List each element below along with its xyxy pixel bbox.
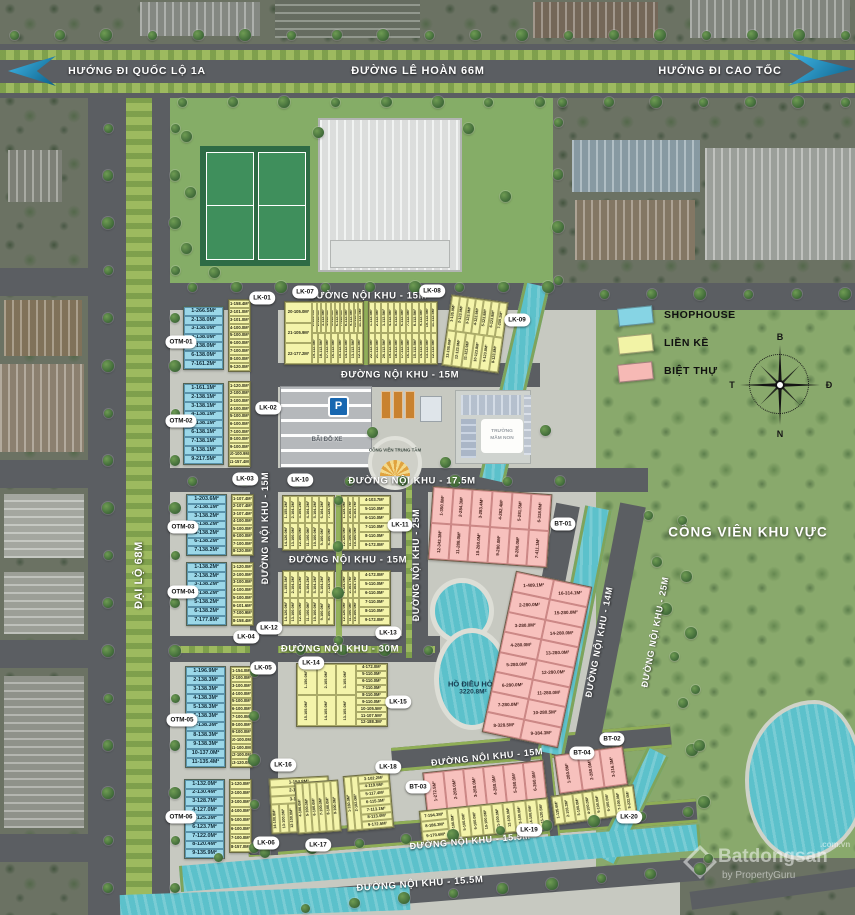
lot: 7-124.0M² [327, 496, 334, 523]
lot: 7-100.0M² [229, 347, 250, 355]
tree-icon [103, 170, 114, 181]
aerial-factory [705, 148, 855, 260]
lot: 1-155.3M² [283, 571, 290, 598]
avenue-median [126, 98, 152, 915]
lot: 5-281.5M² [510, 492, 532, 529]
lot: 3-283.4M² [470, 490, 492, 527]
lot: 6-318.0M² [529, 494, 551, 531]
tree-icon [600, 290, 609, 299]
aerial-left-houses [4, 300, 82, 356]
lot: 4-100.0M² [229, 405, 250, 413]
tree-icon [432, 96, 444, 108]
tree-icon [554, 118, 563, 127]
tree-icon [670, 652, 679, 661]
lot: 8-157.0M² [230, 843, 251, 852]
block-badge-OTM-03: OTM-03 [167, 521, 198, 534]
lot: 3-138.0M² [184, 325, 223, 334]
kindergarten-label-2: MẦM NON [490, 436, 513, 443]
lot: 9-172.5M² [362, 819, 394, 829]
tree-icon [793, 29, 805, 41]
aerial-cross-road [0, 268, 112, 296]
lot: 8-120.0M² [232, 548, 253, 556]
lot: 2-284.3M² [451, 488, 473, 525]
tree-icon [841, 98, 850, 107]
lot: 5-110.0M² [356, 671, 387, 678]
lot-block-LK-12-col: 1-120.0M²2-100.0M²3-100.0M²4-100.0M²5-10… [231, 562, 254, 626]
lot: 12-100.0M² [298, 523, 305, 550]
lot: 4-100.0M² [232, 586, 253, 594]
road-label-le-hoan: ĐƯỜNG LÊ HOÀN 66M [351, 65, 485, 77]
block-badge-LK-01: LK-01 [249, 292, 275, 305]
tree-icon [503, 477, 512, 486]
tree-icon [170, 740, 181, 751]
lot-block-LK-17-blk: 4-100.0M²5-100.0M²6-100.0M²7-100.0M²8-10… [294, 780, 342, 835]
lot: 5-138.3M² [186, 703, 225, 712]
lot: 8-158.4M² [232, 617, 253, 625]
tree-icon [678, 516, 687, 525]
lot: 2-100.0M² [231, 675, 252, 683]
tree-icon [104, 124, 113, 133]
lot: 7-138.2M² [187, 546, 226, 555]
road-label-quoc-lo-1a: HƯỚNG ĐI QUỐC LỘ 1A [68, 65, 206, 77]
tree-icon [564, 31, 573, 40]
aerial-cross-road [0, 834, 112, 862]
lot: 7-100.0M² [232, 540, 253, 548]
lot: 5-100.0M² [230, 816, 251, 825]
lot: 1-120.0M² [232, 563, 253, 571]
lot: 13-105.0M² [336, 695, 356, 726]
kindergarten-label-1: TRƯỜNG [491, 429, 513, 436]
lot: 9-100.0M² [229, 443, 250, 451]
lot: 4-104.2M² [305, 571, 312, 598]
tree-icon [542, 281, 554, 293]
tree-icon [103, 455, 114, 466]
lot: 8-110.0M² [359, 607, 390, 616]
lot: 9-110.0M² [356, 698, 387, 705]
lot: 1-161.1M² [184, 384, 223, 393]
block-badge-OTM-01: OTM-01 [165, 336, 196, 349]
lot: 2-138.1M² [184, 393, 223, 402]
lot: 3-100.0M² [231, 682, 252, 690]
lot: 6-104.2M² [319, 496, 326, 523]
lot: 3-138.2M² [187, 512, 226, 521]
kindergarten-building [461, 419, 476, 458]
tree-icon [10, 31, 19, 40]
tree-icon [792, 96, 804, 108]
road-label: ĐƯỜNG NỘI KHU - 15M [260, 472, 270, 585]
tree-icon [102, 360, 114, 372]
tree-icon [171, 836, 180, 845]
lot: 6-100.0M² [229, 339, 250, 347]
lot: 6-101.6M² [232, 602, 253, 610]
lot: 5-104.2M² [312, 496, 319, 523]
block-badge-LK-20: LK-20 [616, 811, 642, 824]
lot: 9-120.0M² [229, 363, 250, 371]
lot: 9-100.0M² [319, 523, 326, 550]
compass-hub [775, 380, 785, 390]
tree-icon [349, 898, 360, 909]
lot-block-LK-14-blk: 1-150.0M²2-105.0M²3-105.0M²15-105.0M²14-… [296, 663, 388, 727]
lot: 3-104.2M² [298, 496, 305, 523]
compass-south: N [777, 429, 784, 439]
lot: 11-288.0M² [448, 524, 470, 561]
lot: 6-138.2M² [187, 538, 226, 547]
tree-icon [425, 31, 434, 40]
watermark-byline: by PropertyGuru [722, 870, 795, 881]
lot: 1-132.0M² [185, 780, 224, 789]
lot: 5-138.2M² [187, 598, 226, 607]
court-net-line [258, 205, 306, 206]
lot: 9-280.0M² [488, 527, 510, 564]
lot: 2-138.0M² [184, 316, 223, 325]
tree-icon [248, 754, 260, 766]
lot: 6-260.0M² [523, 761, 547, 801]
tree-icon [181, 131, 192, 142]
tree-icon [685, 627, 697, 639]
road-label: ĐẠI LỘ 68M [133, 541, 145, 609]
lot: 10-100.0M² [312, 523, 319, 550]
lot: 9-138.3M² [186, 740, 225, 749]
parking-label: BÃI ĐỖ XE [312, 437, 343, 443]
tree-icon [169, 645, 181, 657]
tennis-court [258, 152, 306, 260]
lot: 12-343.3M² [429, 523, 451, 560]
tree-icon [104, 836, 113, 845]
lot-block-LK-13-blk: 1-124.0M²2-103.7M²3-103.7M²12-120.0M²11-… [341, 570, 391, 626]
lot: 1-120.0M² [229, 382, 250, 390]
tree-icon [498, 282, 509, 293]
tree-icon [275, 281, 287, 293]
lot: 3-138.3M² [186, 685, 225, 694]
lot: 5-110.0M² [359, 505, 390, 514]
lot: 2-101.0M² [229, 308, 250, 316]
lot: 3-101.0M² [229, 316, 250, 324]
road-label: ĐƯỜNG NỘI KHU - 15M [289, 555, 407, 566]
aerial-top-buildings [690, 0, 850, 38]
compass-west: T [729, 380, 735, 390]
tree-icon [381, 97, 392, 108]
tree-icon [170, 170, 181, 181]
lot: 6-110.0M² [356, 678, 387, 685]
tree-icon [104, 266, 113, 275]
lot: 12-188.3M² [356, 719, 387, 726]
lot: 12-112.5M² [357, 333, 363, 364]
lot: 6-104.2M² [319, 571, 326, 598]
lot: 11-100.0M² [231, 744, 252, 752]
lot: 12-112.5M² [431, 333, 437, 364]
aerial-left-warehouse [4, 494, 84, 558]
lot: 11-135.4M² [186, 758, 225, 767]
lot: 1-138.2M² [187, 563, 226, 572]
legend-chip-lien-ke [617, 333, 654, 355]
block-badge-LK-14: LK-14 [298, 657, 324, 670]
lot: 1-266.5M² [184, 307, 223, 316]
road-label: ĐƯỜNG NỘI KHU - 25M [411, 509, 421, 622]
lot: 10-100.0M² [231, 736, 252, 744]
lot: 2-138.3M² [186, 676, 225, 685]
lot: 11-112.5M² [358, 302, 363, 333]
block-badge-LK-17: LK-17 [305, 839, 331, 852]
lot: 4-100.0M² [232, 518, 253, 526]
lot: 6-100.0M² [231, 705, 252, 713]
tree-icon [169, 502, 181, 514]
lot: 6-100.0M² [232, 533, 253, 541]
lot: 2-107.4M² [232, 503, 253, 511]
block-badge-OTM-04: OTM-04 [167, 586, 198, 599]
lot: 1-158.4M² [229, 300, 250, 308]
lot: 7-122.0M² [185, 832, 224, 841]
lot: 13-100.0M² [290, 523, 297, 550]
lot: 11-100.0M² [305, 598, 312, 625]
lot: 4-282.4M² [490, 491, 512, 528]
road-label: ĐƯỜNG NỘI KHU - 30M [281, 644, 399, 655]
block-badge-LK-07: LK-07 [292, 286, 318, 299]
block-badge-BT-01: BT-01 [550, 518, 575, 531]
tree-icon [440, 457, 451, 468]
boulevard-median [0, 50, 855, 60]
lot: 8-110.0M² [356, 692, 387, 699]
kindergarten-sign: TRƯỜNG MẦM NON [481, 419, 523, 453]
block-badge-LK-03: LK-03 [232, 473, 258, 486]
lot: 22-177.2M² [285, 343, 312, 364]
lot: 9-100.0M² [319, 598, 326, 625]
lot: 9-172.0M² [359, 616, 390, 625]
lot: 3-138.1M² [184, 402, 223, 411]
tree-icon [231, 282, 242, 293]
tree-icon [546, 878, 558, 890]
tree-icon [542, 820, 553, 831]
park-label: CÔNG VIÊN KHU VỰC [668, 525, 827, 540]
block-badge-BT-04: BT-04 [569, 747, 594, 760]
tree-icon [171, 551, 180, 560]
block-badge-OTM-06: OTM-06 [165, 811, 196, 824]
lot-block-LK-18-blk: 1-160.0M²2-102.0M²3-102.2M²4-119.5M²5-11… [343, 772, 395, 832]
lot: 3-316.3M² [600, 746, 628, 787]
lot: 7-100.0M² [230, 834, 251, 843]
lot: 11-157.4M² [229, 458, 250, 466]
tree-icon [102, 217, 114, 229]
lot-block-LK-01-col: 1-158.4M²2-101.0M²3-101.0M²4-100.0M²5-10… [228, 299, 251, 372]
road-label: ĐƯỜNG NỘI KHU - 17.5M [348, 476, 475, 487]
lot: 5-100.0M² [232, 594, 253, 602]
lot: 8-120.4M² [185, 841, 224, 850]
compass-east: Đ [826, 380, 833, 390]
lot: 4-138.3M² [186, 694, 225, 703]
lot: 2-104.2M² [290, 496, 297, 523]
tree-icon [747, 30, 758, 41]
road-label-cao-toc: HƯỚNG ĐI CAO TỐC [658, 65, 782, 77]
tree-icon [588, 815, 600, 827]
aerial-left-warehouse [4, 676, 84, 828]
lot: 11-112.5M² [431, 302, 437, 333]
lot-block-LK-11-blk: 1-124.0M²2-103.7M²3-103.7M²12-120.0M²11-… [341, 495, 391, 551]
lot: 5-104.2M² [312, 571, 319, 598]
lot: 13-100.0M² [290, 598, 297, 625]
lot: 11-100.0M² [305, 523, 312, 550]
lot: 2-138.2M² [187, 572, 226, 581]
road-label: ĐƯỜNG NỘI KHU - 15M [341, 370, 459, 381]
tree-icon [102, 502, 114, 514]
shophouse-buildings [381, 391, 391, 419]
lot: 10-280.0M² [468, 526, 490, 563]
lot: 9-172.0M² [359, 541, 390, 550]
lot: 3-107.4M² [232, 510, 253, 518]
aerial-factory [572, 140, 700, 192]
lot: 9-217.5M² [184, 455, 223, 464]
lot: 6-138.0M² [184, 351, 223, 360]
lot: 15-105.0M² [297, 695, 317, 726]
tree-icon [193, 30, 204, 41]
lot: 8-138.1M² [184, 446, 223, 455]
lot: 10-100.9M² [229, 451, 250, 459]
plaza-label: CÔNG VIÊN TRUNG TÂM [369, 448, 421, 453]
lot: 1-203.6M² [187, 495, 226, 504]
watermark-brand: Batdongsan [718, 846, 828, 868]
lot: 6-100.0M² [229, 420, 250, 428]
tree-icon [331, 98, 340, 107]
lot-block-LK-10-blk-b: 1-155.3M²2-104.2M²3-104.2M²4-104.2M²5-10… [282, 570, 335, 626]
aerial-top-buildings [533, 2, 658, 38]
block-badge-LK-13: LK-13 [375, 627, 401, 640]
tree-icon [355, 839, 364, 848]
block-badge-LK-19: LK-19 [516, 824, 542, 837]
parking-sign: P [328, 396, 349, 417]
lot: 4-172.0M² [359, 571, 390, 580]
lot: 6-100.0M² [230, 825, 251, 834]
tree-icon [699, 98, 708, 107]
lot: 8-100.0M² [327, 598, 334, 625]
lot: 8-110.0M² [359, 532, 390, 541]
block-badge-LK-08: LK-08 [419, 285, 445, 298]
lot-block-LK-06-col: 1-120.0M²2-100.0M²3-100.0M²4-100.0M²5-10… [229, 779, 252, 853]
aerial-factory [575, 200, 695, 260]
aerial-top-buildings [275, 0, 420, 38]
tree-icon [103, 740, 114, 751]
block-badge-LK-11: LK-11 [387, 519, 412, 532]
aerial-cross-road [0, 640, 112, 668]
tree-icon [171, 124, 180, 133]
tree-icon [181, 243, 192, 254]
lot: 6-138.1M² [184, 428, 223, 437]
tree-icon [516, 29, 528, 41]
tree-icon [698, 796, 710, 808]
tree-icon [681, 571, 692, 582]
lot: 4-100.0M² [231, 690, 252, 698]
aerial-left-houses [8, 150, 62, 202]
tree-icon [484, 98, 493, 107]
tree-icon [188, 477, 197, 486]
lot: 7-100.0M² [229, 428, 250, 436]
lot: 3-128.7M² [185, 797, 224, 806]
tree-icon [313, 127, 324, 138]
lot: 7-411.1M² [527, 530, 549, 567]
legend-label-lien-ke: LIỀN KỀ [664, 337, 709, 349]
tree-icon [209, 267, 220, 278]
shophouse-buildings [393, 391, 403, 419]
tree-icon [334, 496, 343, 505]
block-badge-LK-04: LK-04 [233, 631, 259, 644]
lot: 1-196.9M² [186, 667, 225, 676]
lot: 6-110.0M² [359, 589, 390, 598]
tree-icon [449, 889, 458, 898]
legend-chip-biet-thu [617, 361, 654, 383]
lot: 5-110.0M² [359, 580, 390, 589]
block-badge-LK-06: LK-06 [253, 837, 279, 850]
tree-icon [839, 288, 851, 300]
block-badge-LK-02: LK-02 [255, 402, 281, 415]
lot: 2-130.4M² [185, 789, 224, 798]
tree-icon [104, 694, 113, 703]
tree-icon [597, 874, 606, 883]
watermark-domain: .com.vn [820, 840, 850, 849]
lot: 5-100.0M² [229, 413, 250, 421]
lot: 7-138.1M² [184, 437, 223, 446]
lot: 4-103.7M² [359, 496, 390, 505]
lot-block-BT-01-blk: 1-350.0M²2-284.3M²3-283.4M²4-282.4M²5-28… [428, 486, 553, 568]
tree-icon [424, 646, 433, 655]
tree-icon [694, 863, 706, 875]
lot-block-LK-03-col: 1-107.4M²2-107.4M²3-107.4M²4-100.0M²5-10… [231, 494, 254, 556]
block-badge-LK-12: LK-12 [256, 622, 282, 635]
lot: 10-100.0M² [312, 598, 319, 625]
lot: 1-155.2M² [283, 496, 290, 523]
lot: 2-100.0M² [232, 571, 253, 579]
lot: 11-107.5M² [356, 712, 387, 719]
lot: 1-154.0M² [231, 667, 252, 675]
lot: 21-105.9M² [285, 323, 312, 344]
lot: 7-100.9M² [232, 610, 253, 618]
lot: 14-120.0M² [283, 598, 290, 625]
lot-block-LK-07-blk: 20-105.0M²21-105.9M²22-177.2M²1-153.9M²2… [284, 301, 364, 365]
tree-icon [104, 409, 113, 418]
tree-icon [455, 283, 464, 292]
lot-block-LK-08-blk: 1-112.5M²2-112.5M²3-112.5M²4-112.5M²5-11… [368, 301, 438, 365]
block-badge-LK-09: LK-09 [504, 314, 530, 327]
tree-icon [287, 31, 296, 40]
lot: 2-104.2M² [290, 571, 297, 598]
lot: 1-107.4M² [232, 495, 253, 503]
compass-rose: B N T Đ [744, 349, 816, 421]
tree-icon [644, 511, 653, 520]
lot-block-LK-10-blk-a: 1-155.2M²2-104.2M²3-104.2M²4-104.2M²5-10… [282, 495, 335, 551]
legend-chip-shophouse [617, 305, 654, 327]
lot: 4-172.0M² [356, 664, 387, 671]
aerial-cross-road [0, 460, 112, 488]
block-badge-LK-18: LK-18 [375, 761, 401, 774]
tree-icon [497, 883, 508, 894]
tree-icon [104, 551, 113, 560]
tree-icon [704, 854, 713, 863]
lot: 8-280.0M² [507, 528, 529, 565]
tree-icon [558, 98, 567, 107]
tree-icon [744, 290, 753, 299]
tennis-court [206, 152, 254, 260]
lot: 4-100.0M² [230, 807, 251, 816]
lot: 5-100.0M² [232, 525, 253, 533]
tree-icon [102, 645, 114, 657]
tree-icon [214, 853, 223, 862]
tree-icon [694, 740, 705, 751]
tree-icon [745, 97, 756, 108]
lot: 6-138.2M² [187, 607, 226, 616]
tree-icon [185, 187, 196, 198]
tree-icon [170, 455, 181, 466]
lot: 9-100.0M² [231, 729, 252, 737]
lot: 4-104.2M² [305, 496, 312, 523]
tree-icon [841, 31, 850, 40]
legend-label-shophouse: SHOPHOUSE [664, 309, 736, 321]
watermark: Batdongsan .com.vn by PropertyGuru [688, 840, 855, 892]
